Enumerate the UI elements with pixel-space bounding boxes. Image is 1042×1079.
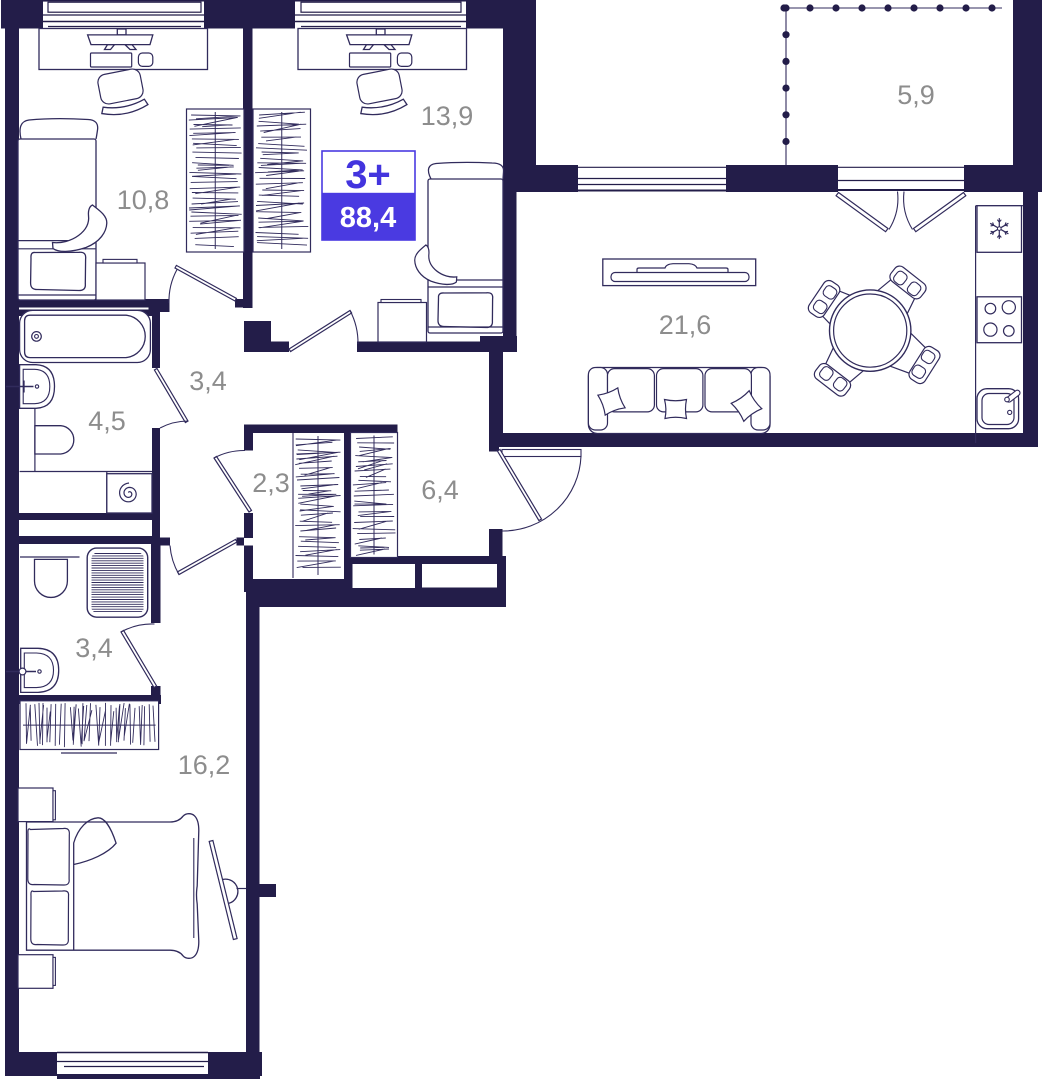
svg-text:3,4: 3,4 — [75, 633, 113, 663]
svg-text:6,4: 6,4 — [421, 475, 459, 505]
svg-text:2,3: 2,3 — [252, 468, 290, 498]
svg-text:4,5: 4,5 — [88, 406, 126, 436]
svg-text:5,9: 5,9 — [897, 80, 935, 110]
svg-text:10,8: 10,8 — [117, 185, 170, 215]
svg-text:21,6: 21,6 — [659, 310, 712, 340]
svg-text:88,4: 88,4 — [340, 202, 396, 234]
svg-text:3+: 3+ — [345, 153, 391, 197]
svg-text:16,2: 16,2 — [178, 750, 231, 780]
svg-text:13,9: 13,9 — [421, 101, 474, 131]
svg-text:3,4: 3,4 — [189, 366, 227, 396]
